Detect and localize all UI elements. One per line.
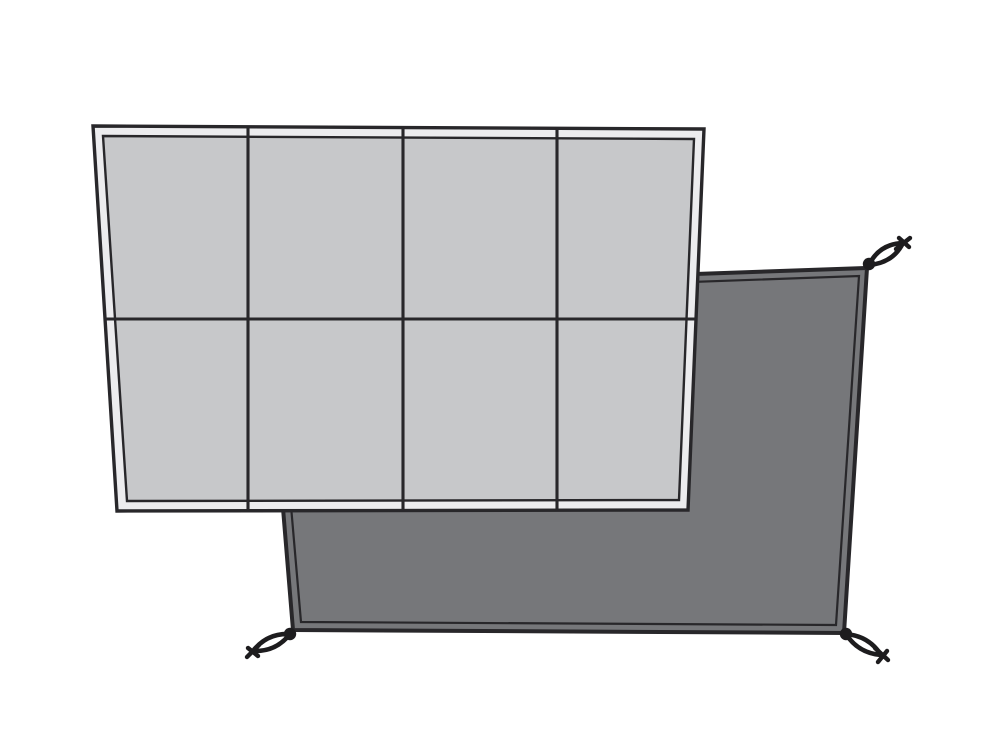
loop-knot (284, 628, 296, 640)
groundsheet-illustration (0, 0, 1000, 750)
stake-loop-bottom-right (840, 628, 888, 662)
loop-knot (863, 258, 875, 270)
illustration-canvas (0, 0, 1000, 750)
front-groundsheet (88, 120, 710, 518)
stake-loop-bottom-left (247, 628, 296, 657)
loop-knot (840, 628, 852, 640)
stake-loop-top-right (863, 238, 910, 270)
